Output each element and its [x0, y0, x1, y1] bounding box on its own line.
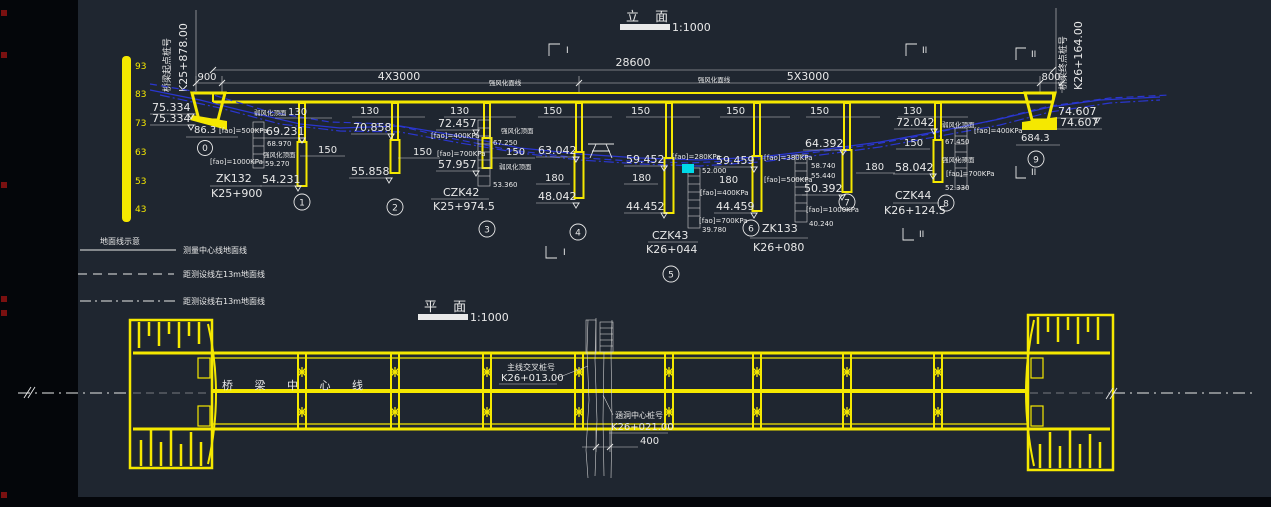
main-cross-chainage: K26+013.00 — [501, 373, 564, 384]
svg-text:K25+900: K25+900 — [211, 187, 262, 200]
svg-text:43: 43 — [135, 205, 146, 215]
svg-text:7: 7 — [844, 199, 850, 209]
svg-text:[fao]=1000KPa: [fao]=1000KPa — [210, 158, 263, 166]
svg-text:强风化顶面: 强风化顶面 — [263, 150, 296, 159]
svg-text:I: I — [563, 248, 566, 258]
svg-text:K26+044: K26+044 — [646, 243, 697, 256]
legend-title: 地面线示意 — [100, 236, 140, 246]
weathered-line-label-left: 强风化面线 — [489, 78, 522, 87]
svg-text:150: 150 — [506, 147, 525, 158]
svg-text:86.3: 86.3 — [194, 125, 216, 136]
svg-text:684.3: 684.3 — [1021, 133, 1050, 144]
svg-text:CZK42: CZK42 — [443, 186, 479, 199]
svg-text:40.240: 40.240 — [809, 220, 834, 228]
svg-text:58.740: 58.740 — [811, 162, 836, 170]
svg-text:弱风化顶面: 弱风化顶面 — [942, 120, 975, 129]
svg-text:II: II — [919, 230, 924, 240]
svg-text:K26+124.5: K26+124.5 — [884, 204, 946, 217]
svg-text:[fao]=400KPa: [fao]=400KPa — [974, 127, 1023, 135]
svg-text:5: 5 — [668, 271, 674, 281]
svg-text:[fao]=400KPa: [fao]=400KPa — [431, 132, 480, 140]
svg-text:130: 130 — [360, 106, 379, 117]
svg-text:180: 180 — [719, 175, 738, 186]
svg-text:180: 180 — [632, 173, 651, 184]
svg-text:73: 73 — [135, 119, 146, 129]
svg-text:150: 150 — [726, 106, 745, 117]
svg-text:54.231: 54.231 — [262, 173, 301, 186]
svg-text:150: 150 — [631, 106, 650, 117]
main-cross-label: 主线交叉桩号 — [507, 362, 555, 372]
svg-text:1: 1 — [299, 199, 305, 209]
svg-text:0: 0 — [202, 144, 208, 154]
end-chainage-value: K26+164.00 — [1072, 21, 1085, 90]
plan-centerline-label: 桥 梁 中 心 线 — [222, 378, 372, 392]
svg-text:57.957: 57.957 — [438, 158, 477, 171]
svg-text:I: I — [566, 46, 569, 56]
dim-left-spans: 4X3000 — [378, 70, 421, 83]
svg-text:180: 180 — [865, 162, 884, 173]
svg-text:93: 93 — [135, 62, 146, 72]
culvert-width-dim: 400 — [640, 436, 659, 447]
svg-text:72.457: 72.457 — [438, 117, 477, 130]
svg-text:II: II — [1031, 50, 1036, 60]
svg-text:72.042: 72.042 — [896, 116, 935, 129]
elevation-title-bar — [620, 24, 670, 30]
svg-text:63: 63 — [135, 148, 146, 158]
svg-text:4: 4 — [575, 229, 581, 239]
svg-text:44.459: 44.459 — [716, 200, 755, 213]
culvert-label: 涵洞中心桩号 — [615, 410, 663, 420]
svg-text:[fao]=500KPa: [fao]=500KPa — [219, 127, 268, 135]
svg-text:63.042: 63.042 — [538, 144, 577, 157]
dim-right-overhang: 800 — [1041, 72, 1060, 83]
cad-canvas[interactable]: 立 面 1:1000 桥梁起点桩号 K25+878.00 桥梁终点桩号 K26+… — [0, 0, 1271, 507]
plan-scale: 1:1000 — [470, 311, 509, 324]
start-chainage-label: 桥梁起点桩号 — [161, 38, 173, 92]
svg-text:弱风化顶面: 弱风化顶面 — [254, 108, 287, 117]
svg-text:ZK132: ZK132 — [216, 172, 252, 185]
svg-text:55.858: 55.858 — [351, 165, 390, 178]
dim-right-spans: 5X3000 — [787, 70, 830, 83]
svg-text:67.450: 67.450 — [945, 138, 970, 146]
svg-text:70.858: 70.858 — [353, 121, 392, 134]
svg-text:6: 6 — [748, 225, 754, 235]
dim-total: 28600 — [616, 56, 651, 69]
svg-text:59.270: 59.270 — [265, 160, 290, 168]
svg-text:3: 3 — [484, 226, 490, 236]
svg-text:50.392: 50.392 — [804, 182, 843, 195]
svg-text:[fao]=1000KPa: [fao]=1000KPa — [806, 206, 859, 214]
svg-text:K26+080: K26+080 — [753, 241, 804, 254]
svg-text:39.780: 39.780 — [702, 226, 727, 234]
svg-text:ZK133: ZK133 — [762, 222, 798, 235]
svg-text:II: II — [1031, 168, 1036, 178]
svg-text:150: 150 — [318, 145, 337, 156]
legend-solid-label: 测量中心线地面线 — [183, 245, 247, 255]
svg-text:[fao]=280KPa: [fao]=280KPa — [672, 153, 721, 161]
svg-text:弱风化顶面: 弱风化顶面 — [499, 162, 532, 171]
elevation-title: 立 面 — [626, 10, 674, 25]
svg-text:130: 130 — [450, 106, 469, 117]
svg-text:150: 150 — [810, 106, 829, 117]
plan-title: 平 面 — [424, 300, 472, 315]
highlight-box — [682, 164, 694, 173]
svg-text:CZK44: CZK44 — [895, 189, 931, 202]
svg-text:CZK43: CZK43 — [652, 229, 688, 242]
svg-text:150: 150 — [543, 106, 562, 117]
svg-text:55.440: 55.440 — [811, 172, 836, 180]
svg-text:强风化顶面: 强风化顶面 — [942, 155, 975, 164]
svg-text:69.231: 69.231 — [266, 125, 305, 138]
elevation-scale-bar — [122, 56, 131, 222]
svg-text:68.970: 68.970 — [267, 140, 292, 148]
legend-dashdot-label: 距测设线右13m地面线 — [183, 296, 265, 306]
svg-text:67.250: 67.250 — [493, 139, 518, 147]
svg-text:180: 180 — [545, 173, 564, 184]
svg-text:II: II — [922, 46, 927, 56]
weathered-line-label-right: 强风化面线 — [698, 75, 731, 84]
svg-text:64.392: 64.392 — [805, 137, 844, 150]
svg-text:[fao]=400KPa: [fao]=400KPa — [700, 189, 749, 197]
plan-title-bar — [418, 314, 468, 320]
culvert-chainage: K26+021.00 — [611, 422, 674, 433]
legend-dashed-label: 距测设线左13m地面线 — [183, 269, 265, 279]
svg-text:53: 53 — [135, 177, 146, 187]
svg-text:[fao]=700KPa: [fao]=700KPa — [699, 217, 748, 225]
svg-text:9: 9 — [1033, 156, 1039, 166]
svg-text:[fao]=700KPa: [fao]=700KPa — [946, 170, 995, 178]
svg-text:强风化顶面: 强风化顶面 — [501, 126, 534, 135]
svg-text:52.330: 52.330 — [945, 184, 970, 192]
elevation-scale: 1:1000 — [672, 21, 711, 34]
svg-text:48.042: 48.042 — [538, 190, 577, 203]
svg-text:130: 130 — [288, 107, 307, 118]
svg-text:58.042: 58.042 — [895, 161, 934, 174]
svg-text:2: 2 — [392, 204, 398, 214]
svg-text:53.360: 53.360 — [493, 181, 518, 189]
svg-text:150: 150 — [413, 147, 432, 158]
svg-text:[fao]=700KPa: [fao]=700KPa — [437, 150, 486, 158]
svg-text:52.000: 52.000 — [702, 167, 727, 175]
start-chainage-value: K25+878.00 — [177, 23, 190, 92]
svg-text:59.459: 59.459 — [716, 154, 755, 167]
svg-text:83: 83 — [135, 90, 146, 100]
svg-text:59.452: 59.452 — [626, 153, 665, 166]
svg-text:44.452: 44.452 — [626, 200, 665, 213]
svg-text:150: 150 — [904, 138, 923, 149]
dim-left-overhang: 900 — [197, 72, 216, 83]
svg-text:[fao]=380KPa: [fao]=380KPa — [764, 154, 813, 162]
svg-text:K25+974.5: K25+974.5 — [433, 200, 495, 213]
